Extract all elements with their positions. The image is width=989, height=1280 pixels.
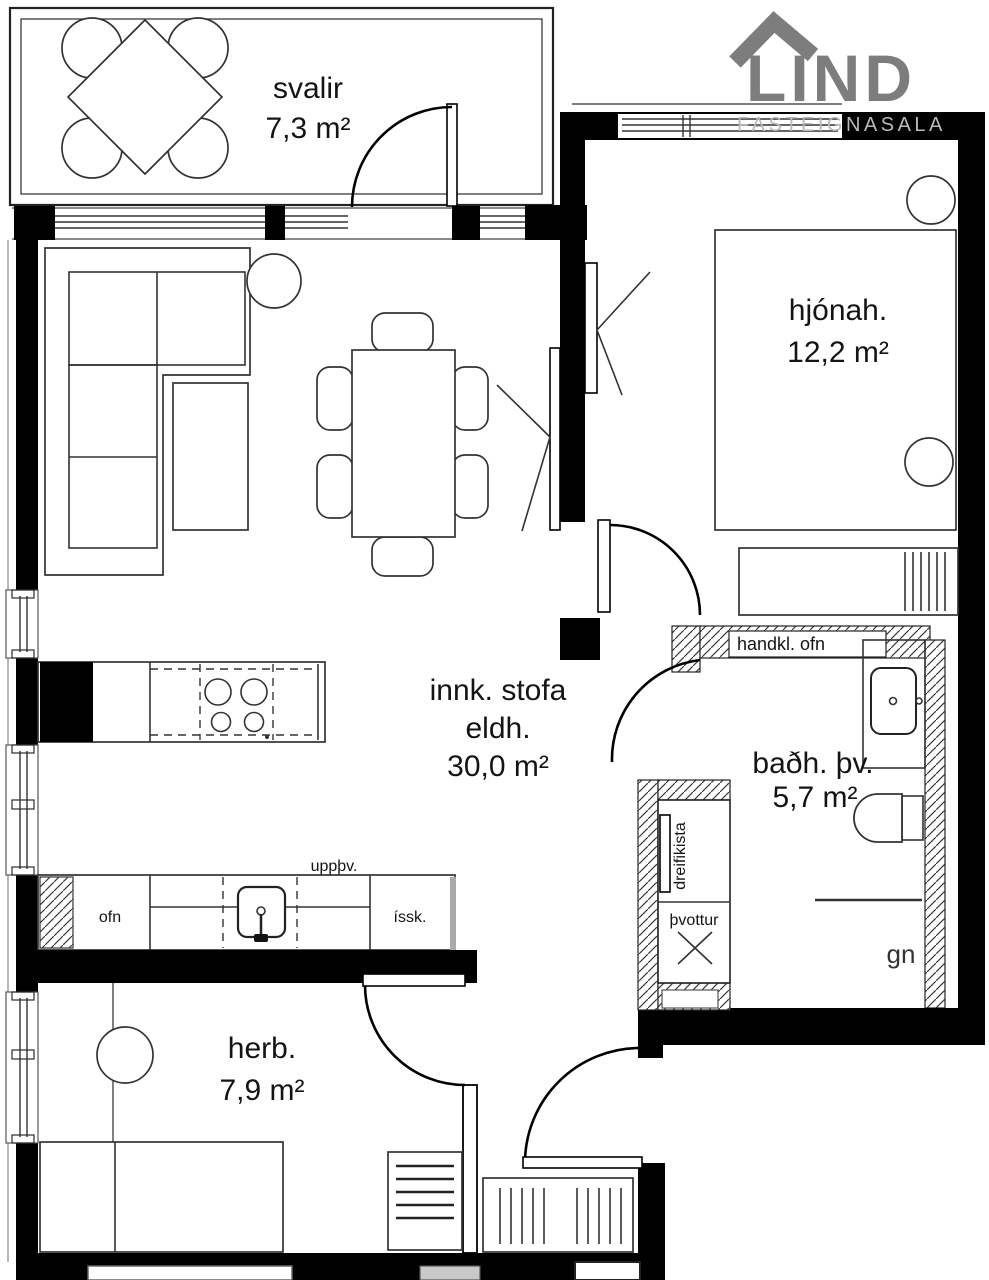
south-vent (88, 1266, 292, 1280)
floorplan-page: svalir 7,3 m² (0, 0, 989, 1280)
balcony: svalir 7,3 m² (10, 8, 553, 205)
herb-bed (40, 1142, 283, 1252)
laundry-niche: dreifikista þvottur (638, 780, 730, 1010)
dining-chair (372, 313, 433, 352)
towel-radiator-label: handkl. ofn (737, 634, 825, 654)
wardrobe-panel (550, 348, 560, 530)
room-area-herb: 7,9 m² (219, 1074, 304, 1107)
dining-chair (317, 455, 353, 518)
dining-table (352, 350, 455, 537)
room-area-innk: 30,0 m² (447, 750, 549, 783)
bedside-table (907, 176, 955, 224)
bedside-table (905, 438, 953, 486)
wall-pier (452, 206, 480, 240)
bedroom-door-leaf (598, 520, 610, 612)
bedroom-door-arc (610, 525, 700, 615)
dining-chair (452, 455, 488, 518)
south-wall (16, 1253, 665, 1280)
bedroom: hjónah. 12,2 m² (560, 104, 985, 1015)
room-area-hjonah: 12,2 m² (787, 336, 889, 369)
bathroom-door-arc (612, 660, 700, 762)
floorplan-drawing: svalir 7,3 m² (0, 0, 989, 1280)
herb-door-arc (365, 986, 465, 1085)
herb-radiator (388, 1152, 462, 1250)
entrance-door-arc (525, 1048, 640, 1163)
west-window (6, 992, 38, 1143)
south-nub (488, 1258, 522, 1280)
bed-bench (739, 548, 958, 615)
wall-pier (265, 206, 285, 240)
logo-subtitle-text: FASTEIGNASALA (737, 114, 946, 136)
kitchen: uppþv. ofn íssk. (38, 662, 456, 950)
balcony-door-leaf (447, 104, 457, 206)
distribution-box-label: dreifikista (672, 822, 689, 890)
dishwasher-label: uppþv. (311, 858, 358, 875)
herb-room: herb. 7,9 m² (40, 983, 462, 1252)
wall-pier (14, 206, 55, 240)
south-vent (575, 1262, 640, 1280)
west-exterior-wall (6, 237, 38, 1268)
bathroom-wall-hatch (925, 640, 945, 1008)
dining-set (317, 313, 488, 576)
drain-label: gn (887, 939, 916, 969)
wall-pier (560, 618, 600, 660)
room-label-herb: herb. (228, 1032, 296, 1065)
room-label-innk-stofa: innk. stofa (430, 674, 567, 707)
dining-chair (452, 367, 488, 430)
room-area-badh: 5,7 m² (772, 781, 857, 814)
west-window (6, 590, 38, 658)
dining-chair (317, 367, 353, 430)
bedroom-closet (585, 263, 597, 393)
room-label-eldh: eldh. (465, 712, 530, 745)
bedroom-west-wall (560, 140, 585, 522)
kitchen-duct (40, 662, 93, 742)
distribution-box (660, 815, 670, 892)
west-window (6, 745, 38, 875)
coffee-table (173, 383, 248, 530)
south-vent (420, 1266, 480, 1280)
entrance-door-leaf (523, 1157, 642, 1168)
room-label-svalir: svalir (273, 72, 343, 105)
fridge-label: íssk. (394, 909, 427, 926)
washing-label: þvottur (670, 912, 720, 929)
room-label-hjonah: hjónah. (789, 294, 887, 327)
dining-chair (372, 537, 433, 576)
logo-brand-text: LIND (746, 41, 916, 115)
bathroom-south-wall (638, 1008, 985, 1045)
east-exterior-wall (958, 112, 985, 1015)
plant (247, 254, 301, 308)
room-label-badh: baðh. þv. (752, 747, 873, 780)
room-area-svalir: 7,3 m² (265, 112, 350, 145)
oven-label: ofn (99, 909, 121, 926)
brand-logo: LIND FASTEIGNASALA (735, 22, 946, 136)
kitchen-sink (238, 887, 285, 942)
fridge-edge (450, 877, 456, 950)
hall-west-wall (463, 1085, 477, 1253)
counter-wall-hatch (40, 877, 73, 948)
toilet (854, 794, 923, 842)
chair (97, 1027, 153, 1083)
herb-door-leaf (363, 974, 465, 986)
